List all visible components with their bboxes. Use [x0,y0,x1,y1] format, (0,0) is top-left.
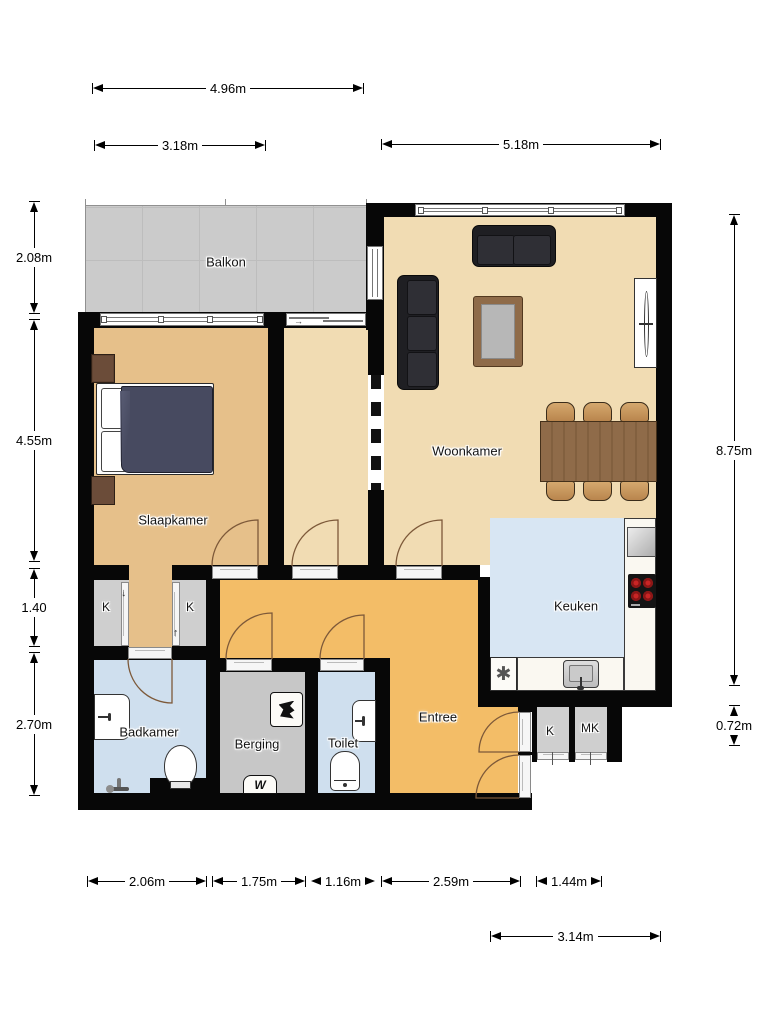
door-arc-storage [226,613,272,659]
door-arcs [0,0,768,1024]
door-arc-toilet [320,615,364,659]
door-arc-bedroom [212,520,258,566]
dim-top-3-18: 3.18m [94,138,266,152]
dim-bottom-2-06: 2.06m [87,874,207,888]
dim-right-8-75: 8.75m [727,214,741,686]
dim-bottom-3-14: 3.14m [490,929,661,943]
room-label-slaapkamer: Slaapkamer [138,513,207,528]
dim-left-1-40: 1.40 [27,568,41,647]
door-arc-hall [479,712,519,752]
dim-left-2-08: 2.08m [27,201,41,314]
closet-label-mk: MK [581,721,599,735]
dim-left-2-70: 2.70m [27,652,41,796]
room-label-entree: Entree [419,710,457,725]
dim-bottom-1-44: 1.44m [536,874,609,888]
door-arc-study [292,520,338,566]
dim-bottom-2-59: 2.59m [381,874,521,888]
dim-right-0-72: 0.72m [727,705,741,753]
dim-top-4-96: 4.96m [92,81,364,95]
room-label-toilet: Toilet [328,736,358,751]
closet-label-k: K [186,600,194,614]
closet-label-k: K [102,600,110,614]
door-arc-front [476,755,519,798]
dim-bottom-1-75: 1.75m [212,874,306,888]
room-label-woonkamer: Woonkamer [432,444,502,459]
room-label-badkamer: Badkamer [119,725,178,740]
floor-plan: → ↓ ↑ [0,0,768,1024]
room-label-balkon: Balkon [206,255,246,270]
door-arc-living [396,520,442,566]
dim-top-5-18: 5.18m [381,137,661,151]
door-arc-bathroom [128,659,172,703]
dim-bottom-1-16: 1.16m [311,874,374,888]
closet-label-k: K [546,724,554,738]
room-label-keuken: Keuken [554,599,598,614]
dim-left-4-55: 4.55m [27,319,41,562]
room-label-berging: Berging [235,737,280,752]
